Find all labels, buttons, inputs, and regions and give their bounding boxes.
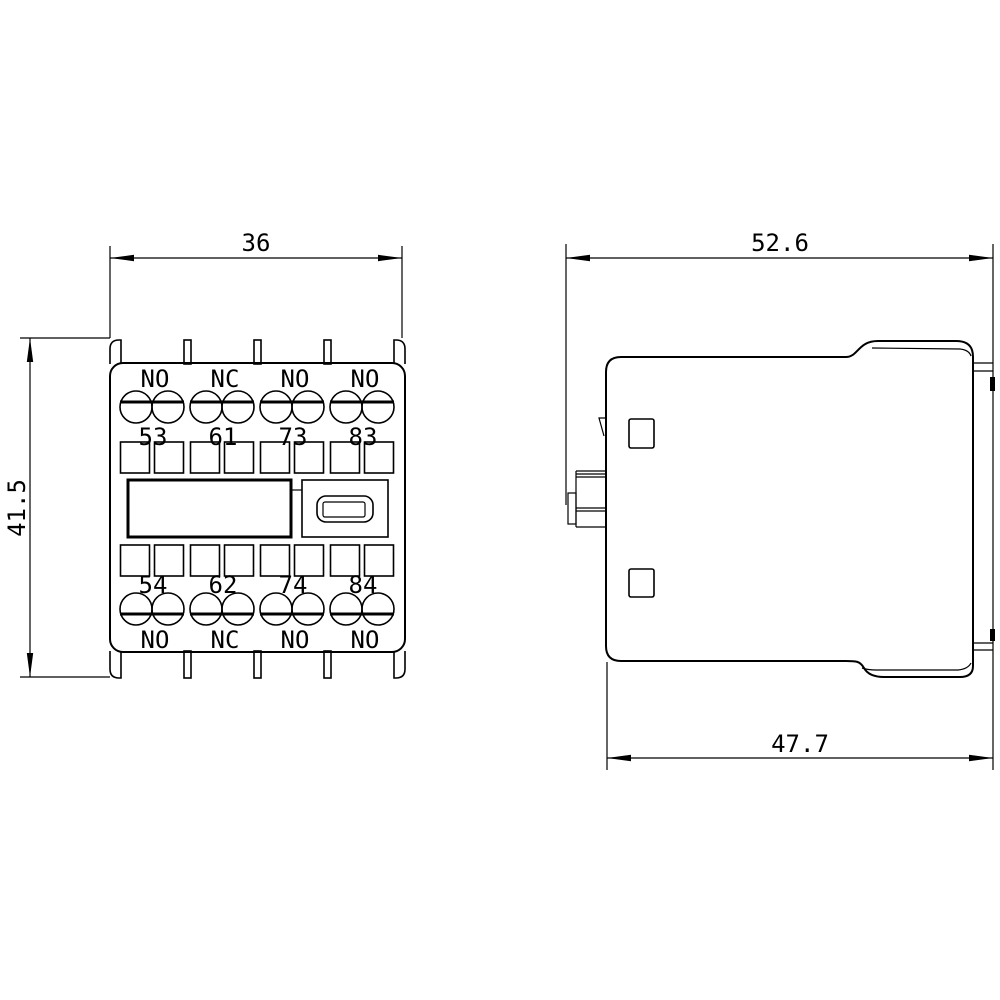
tab-top-right	[394, 340, 405, 364]
contact-label: NO	[141, 365, 170, 393]
latch-button-inner	[323, 502, 365, 517]
terminal-number: 73	[279, 423, 308, 451]
front-top-terminal-numbers: 53 61 73 83	[139, 423, 378, 451]
terminal-number: 83	[349, 423, 378, 451]
dimensional-drawing: 36 41.5 NO NC NO	[0, 0, 1000, 1000]
label-plate	[128, 480, 291, 537]
top-ledge-edge	[872, 348, 971, 356]
dim-side-body-width-value: 47.7	[771, 730, 829, 758]
dim-front-height: 41.5	[3, 338, 110, 677]
tab-bottom-left	[110, 651, 121, 678]
rear-contact-mark	[990, 377, 995, 391]
dim-front-width: 36	[110, 229, 402, 338]
contact-label: NC	[211, 626, 240, 654]
dim-side-body-width: 47.7	[607, 662, 993, 770]
terminal-number: 61	[209, 423, 238, 451]
side-housing	[606, 341, 973, 677]
screw-head	[260, 593, 292, 625]
recess-square	[629, 569, 654, 597]
tab-top	[184, 340, 191, 364]
screw-head	[362, 593, 394, 625]
dim-front-width-value: 36	[242, 229, 271, 257]
screw-head	[222, 593, 254, 625]
arrowhead-right	[969, 255, 993, 261]
side-mount-clip	[568, 471, 606, 527]
tab-top	[254, 340, 261, 364]
arrowhead-top	[27, 338, 33, 362]
front-top-contact-labels: NO NC NO NO	[141, 365, 380, 393]
screw-head	[190, 593, 222, 625]
front-top-screw-terminals	[120, 391, 394, 423]
arrowhead-left	[607, 755, 631, 761]
screw-head	[330, 593, 362, 625]
rear-contact-mark	[990, 629, 995, 641]
contact-label: NO	[281, 365, 310, 393]
dim-front-height-value: 41.5	[3, 479, 31, 537]
side-view: 52.6 47.7	[566, 229, 995, 770]
front-view: 36 41.5 NO NC NO	[3, 229, 405, 678]
bottom-ledge-edge	[862, 663, 971, 670]
tab-bottom	[324, 651, 331, 678]
tab-top	[324, 340, 331, 364]
clip-spring	[568, 493, 576, 524]
front-label-plate	[128, 480, 291, 537]
screw-head	[292, 391, 324, 423]
screw-head	[190, 391, 222, 423]
screw-head	[260, 391, 292, 423]
screw-head	[330, 391, 362, 423]
recess-square	[629, 419, 654, 448]
screw-head	[222, 391, 254, 423]
side-body-outline	[599, 341, 973, 677]
dim-side-overall-width-value: 52.6	[751, 229, 809, 257]
contact-label: NO	[281, 626, 310, 654]
front-bottom-contact-labels: NO NC NO NO	[141, 626, 380, 654]
front-body	[110, 363, 405, 652]
screw-head	[120, 593, 152, 625]
arrowhead-right	[378, 255, 402, 261]
contact-label: NC	[211, 365, 240, 393]
tab-top-left	[110, 340, 121, 364]
contact-label: NO	[351, 626, 380, 654]
tab-bottom	[254, 651, 261, 678]
contact-label: NO	[351, 365, 380, 393]
drawing-svg: 36 41.5 NO NC NO	[0, 0, 1000, 1000]
arrowhead-left	[566, 255, 590, 261]
front-latch	[291, 480, 388, 537]
latch-hook	[599, 418, 606, 436]
side-rear-tabs	[973, 363, 995, 650]
screw-head	[152, 593, 184, 625]
terminal-number: 53	[139, 423, 168, 451]
tab-bottom	[184, 651, 191, 678]
arrowhead-left	[110, 255, 134, 261]
side-housing-recesses	[629, 419, 654, 597]
arrowhead-right	[969, 755, 993, 761]
screw-head	[120, 391, 152, 423]
tab-bottom-right	[394, 651, 405, 678]
screw-head	[152, 391, 184, 423]
dim-side-overall-width: 52.6	[566, 229, 993, 770]
screw-head	[292, 593, 324, 625]
contact-label: NO	[141, 626, 170, 654]
latch-frame	[302, 480, 388, 537]
arrowhead-bottom	[27, 653, 33, 677]
screw-head	[362, 391, 394, 423]
